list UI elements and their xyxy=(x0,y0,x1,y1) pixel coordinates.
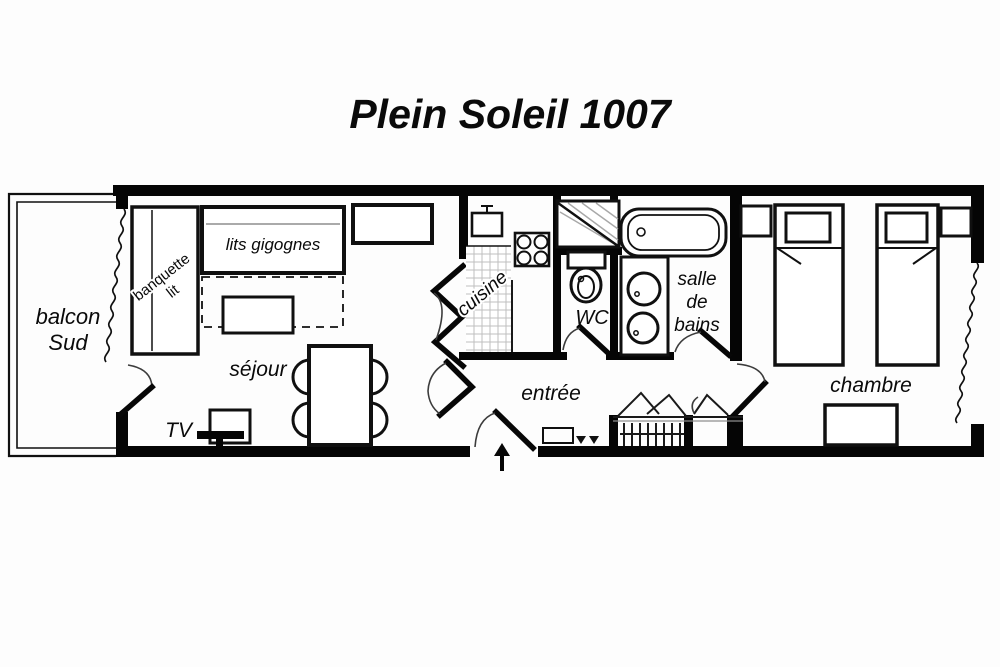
wall-right-top xyxy=(971,185,984,263)
wall-wc-bottom-stub xyxy=(553,352,567,360)
living-entry-door-arc2 xyxy=(428,391,440,414)
bathroom-label-line2: de xyxy=(686,292,707,313)
wall-bottom-left xyxy=(116,446,470,457)
tv-screen xyxy=(197,431,244,439)
balcony-door-arc xyxy=(128,365,152,388)
bathroom: salle de bains xyxy=(621,209,726,355)
entry: entrée xyxy=(494,382,743,471)
stove xyxy=(515,233,549,266)
bathroom-label-line1: salle xyxy=(677,269,716,290)
wall-top xyxy=(113,185,980,196)
wc: WC xyxy=(557,201,619,329)
bed-single xyxy=(877,205,938,365)
wall-right-bottom xyxy=(971,424,984,457)
kitchen-swing-doors xyxy=(434,266,463,366)
coffee-table xyxy=(223,297,293,333)
plan-title: Plein Soleil 1007 xyxy=(349,91,673,137)
living-entry-door-arc1 xyxy=(428,363,446,391)
wc-door-leaf xyxy=(580,327,607,352)
nested-beds-label: lits gigognes xyxy=(226,235,321,254)
toilet xyxy=(568,252,605,302)
wall-left-top-stub xyxy=(116,196,128,209)
window-bedroom xyxy=(956,263,978,423)
bathroom-label-line3: bains xyxy=(674,315,720,336)
floor-plan-page: Plein Soleil 1007 balcon Sud xyxy=(0,0,1000,667)
tv-label: TV xyxy=(165,419,194,442)
kitchen-sink xyxy=(472,213,502,236)
tv-stand xyxy=(216,438,223,447)
entrance-door-arc xyxy=(475,413,495,447)
nightstand xyxy=(741,206,771,236)
window-balcony xyxy=(105,209,125,362)
balcony: balcon Sud xyxy=(9,194,116,456)
nightstand xyxy=(941,208,971,236)
folding-door xyxy=(694,395,728,415)
living-label: séjour xyxy=(229,358,287,381)
bedroom-label: chambre xyxy=(830,374,912,397)
marker-triangle xyxy=(589,436,599,444)
bed-single xyxy=(775,205,843,365)
bathtub xyxy=(621,209,726,256)
storage-cupboard xyxy=(557,201,619,247)
wardrobe xyxy=(609,393,743,448)
balcony-door-leaf xyxy=(121,387,152,414)
wc-door-arc xyxy=(563,328,580,350)
living-room: banquette lit lits gigognes TV séjour xyxy=(130,205,432,447)
balcony-label-line1: balcon xyxy=(36,304,101,329)
bedroom-door-arc xyxy=(737,364,765,382)
bedroom: chambre xyxy=(741,205,971,445)
entry-label: entrée xyxy=(521,382,581,405)
shoe-cabinet xyxy=(543,428,573,443)
balcony-label-line2: Sud xyxy=(48,330,88,355)
cabinet xyxy=(353,205,432,243)
double-washbasin xyxy=(621,257,668,355)
entrance-arrow-icon xyxy=(494,443,510,471)
wall-kitchen-bottom xyxy=(459,352,557,360)
folding-door xyxy=(618,393,659,416)
marker-triangle xyxy=(576,436,586,444)
dining-table xyxy=(309,346,371,445)
living-entry-door-leaves xyxy=(440,362,472,415)
wall-left-bottom-stub xyxy=(116,412,128,446)
entrance-door-leaf xyxy=(496,412,533,448)
wc-label: WC xyxy=(575,307,609,329)
dresser xyxy=(825,405,897,445)
floor-plan-canvas: Plein Soleil 1007 balcon Sud xyxy=(0,0,1000,667)
wall-bottom-right xyxy=(538,446,980,457)
bedroom-door-leaf xyxy=(733,383,765,416)
